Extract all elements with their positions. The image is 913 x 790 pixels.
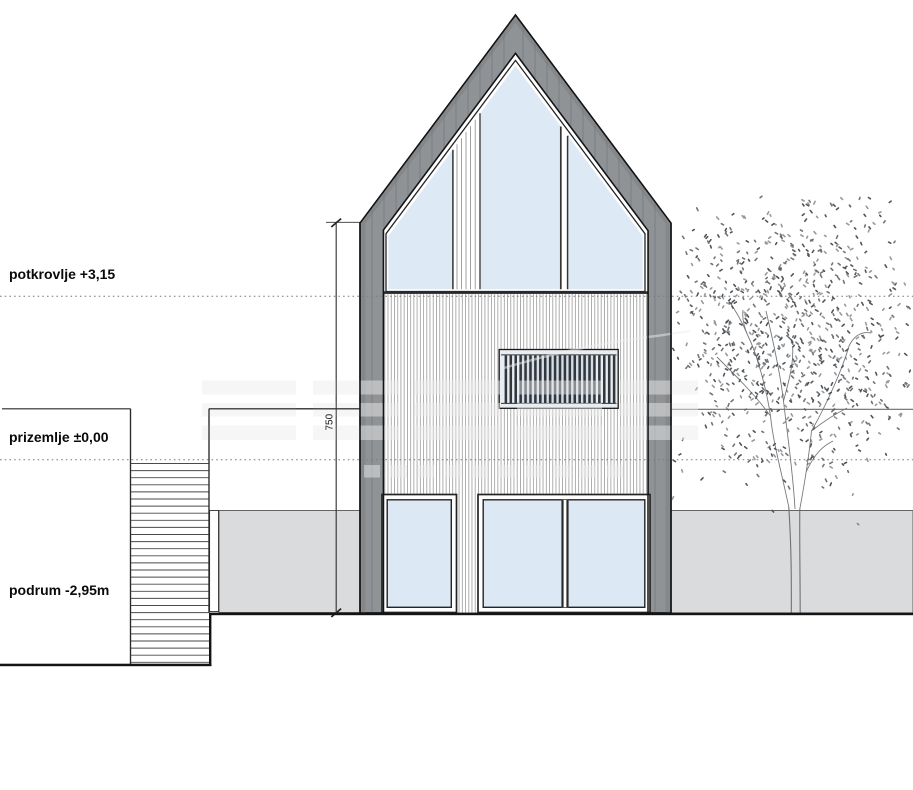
svg-text:potkrovlje +3,15: potkrovlje +3,15 bbox=[9, 266, 115, 282]
svg-text:prizemlje ±0,00: prizemlje ±0,00 bbox=[9, 429, 109, 445]
svg-text:750: 750 bbox=[325, 413, 336, 430]
svg-text:podrum -2,95m: podrum -2,95m bbox=[9, 582, 109, 598]
